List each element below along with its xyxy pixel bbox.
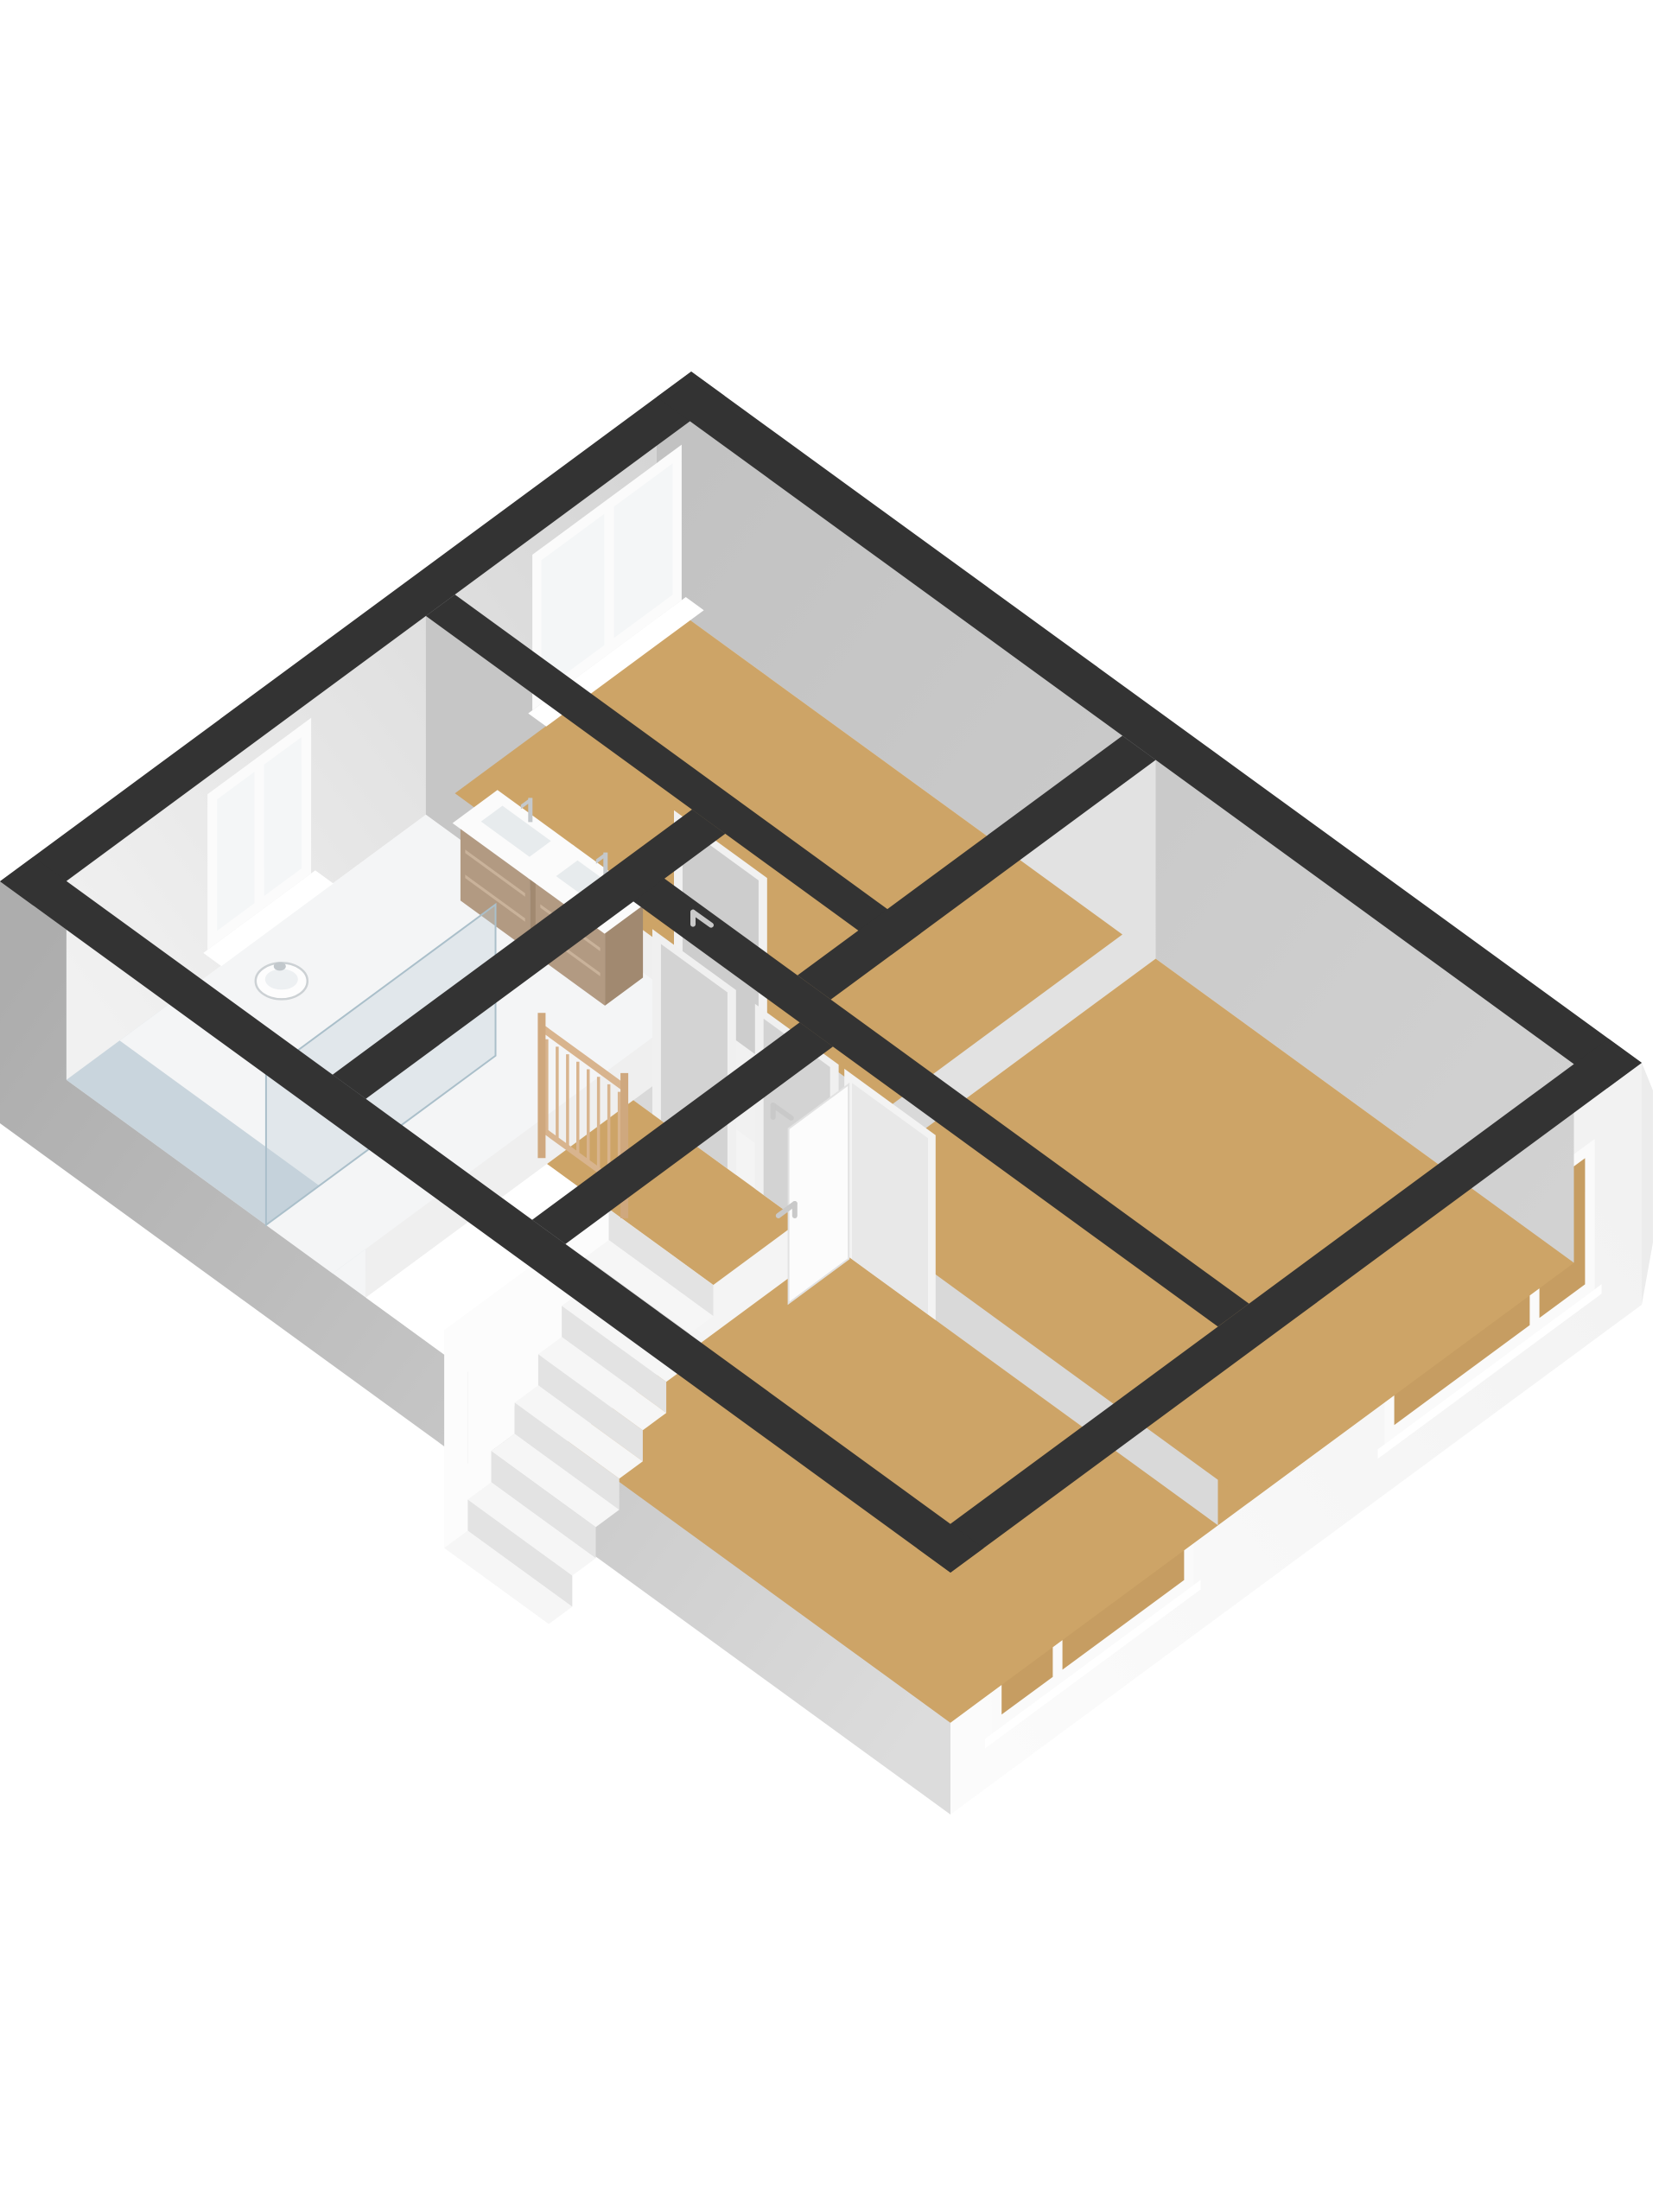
right-corner-edge-sliver — [1642, 1063, 1653, 1305]
stair-railing-baluster-4 — [587, 1070, 590, 1163]
bathroom-toilet-flush — [274, 962, 286, 970]
stair-railing-post-left — [537, 1013, 545, 1158]
bathroom-toilet-seat — [265, 969, 298, 989]
floorplan-stage — [0, 0, 1659, 2212]
stair-railing-baluster-1 — [556, 1046, 559, 1140]
window-bathroom-pane-left — [217, 772, 254, 931]
floorplan-svg — [0, 0, 1659, 2212]
window-bathroom-pane-right — [264, 737, 302, 896]
staircase-stringer-6 — [444, 1313, 467, 1548]
staircase-stringer-3 — [515, 1261, 538, 1402]
staircase-stringer-4 — [492, 1278, 515, 1451]
staircase-stringer-5 — [467, 1295, 491, 1499]
stair-railing-baluster-2 — [566, 1054, 569, 1147]
stair-railing-baluster-3 — [576, 1062, 580, 1155]
stair-railing-baluster-5 — [597, 1077, 601, 1170]
stair-railing-baluster-0 — [545, 1039, 549, 1133]
